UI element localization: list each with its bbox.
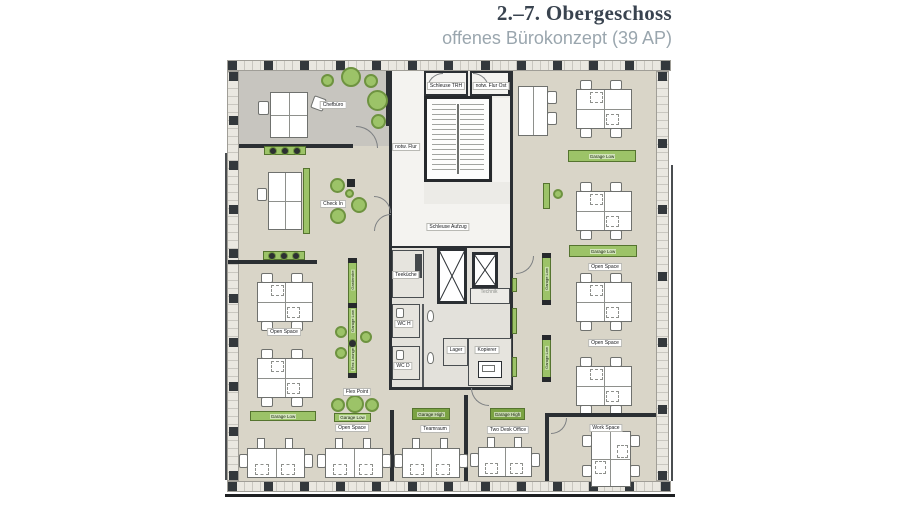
strip-cap — [348, 303, 357, 308]
label-garage-low: Garage Low — [590, 249, 617, 254]
room-label-check-in: Check In — [320, 200, 346, 208]
wall — [545, 413, 549, 481]
facade-column — [229, 116, 238, 125]
partition — [422, 304, 424, 387]
facade-column — [481, 61, 490, 70]
label-garage-low: Garage Low — [339, 415, 366, 420]
plant-icon — [330, 178, 345, 193]
facade-column — [517, 482, 526, 491]
facade-column — [589, 61, 598, 70]
wc-fixture — [396, 308, 404, 318]
wall — [464, 395, 468, 481]
green-panel — [512, 357, 517, 377]
desk-cluster — [570, 273, 638, 331]
facade-column — [553, 482, 562, 491]
plant-pot-icon — [280, 252, 288, 260]
plant-icon — [330, 208, 346, 224]
facade-column — [408, 61, 417, 70]
label-garage-high: Garage High — [494, 412, 522, 417]
stair-flight — [460, 104, 484, 174]
facade-top — [227, 60, 671, 71]
facade-column — [553, 61, 562, 70]
wc-fixture — [396, 350, 404, 360]
room-label-schleuse-trh: Schleuse TRH — [427, 82, 465, 90]
garage-high-bar: Garage High — [412, 408, 450, 420]
plant-icon — [364, 74, 378, 88]
plant-icon — [335, 326, 347, 338]
desk-cluster — [251, 349, 319, 407]
wc-sink — [427, 352, 434, 364]
wc-sink — [427, 310, 434, 322]
pillar — [347, 179, 355, 187]
plant-pot-icon — [268, 252, 276, 260]
desk-pair — [518, 86, 548, 136]
facade-column — [658, 205, 667, 214]
page-subtitle: offenes Bürokonzept (39 AP) — [442, 28, 672, 49]
desk-pair — [247, 438, 305, 484]
page-header: 2.–7. Obergeschoss offenes Bürokonzept (… — [442, 1, 672, 49]
facade-column — [372, 61, 381, 70]
zone-label-open-space: Open Space — [335, 424, 369, 432]
plant-icon — [331, 398, 345, 412]
core-strip — [493, 98, 510, 182]
plant-icon — [360, 331, 372, 343]
chef-desk — [270, 92, 308, 138]
room-label-chefbuero: Chefbüro — [320, 101, 347, 109]
plant-icon — [553, 189, 563, 199]
label-garage-low: Garage Low — [270, 414, 297, 419]
facade-column — [229, 294, 238, 303]
copier-icon — [478, 361, 502, 378]
label-flex-lounge: Flex Lounge — [351, 347, 355, 371]
facade-column — [300, 61, 309, 70]
desk-cluster — [570, 182, 638, 240]
facade-column — [481, 482, 490, 491]
desk-cluster — [570, 357, 638, 415]
facade-column — [658, 471, 667, 480]
room-label-work-space: Work Space — [589, 424, 622, 432]
room-label-schleuse-aufzug: Schleuse Aufzug — [426, 223, 469, 231]
facade-column — [658, 405, 667, 414]
strip-cap — [542, 335, 551, 340]
facade-right — [656, 71, 669, 481]
zone-label-open-space: Open Space — [267, 328, 301, 336]
facade-column — [661, 61, 670, 70]
plot-base-line — [225, 494, 675, 497]
facade-left — [227, 71, 239, 481]
green-panel — [512, 278, 517, 292]
strip-cap — [348, 258, 357, 263]
facade-column — [229, 249, 238, 258]
plant-icon — [341, 67, 361, 87]
floor-plan: Garderobe Garage Low Flex Lounge Garage … — [225, 58, 675, 498]
desk-cluster — [582, 425, 640, 493]
desk-cluster — [251, 273, 319, 331]
desk-pair — [402, 438, 460, 484]
strip-cap — [542, 377, 551, 382]
elevator-icon — [437, 248, 467, 304]
plant-icon — [365, 398, 379, 412]
room-label-notw-flur-ost: notw. Flur Ost — [473, 82, 510, 90]
desk-pair — [325, 438, 383, 484]
garage-low-bar: Garage Low — [568, 150, 636, 162]
label-garderobe: Garderobe — [351, 269, 355, 290]
facade-column — [228, 61, 237, 70]
room-label-wc-h: WC H — [394, 320, 413, 328]
label-garage-high: Garage High — [417, 412, 445, 417]
facade-column — [625, 61, 634, 70]
plant-icon — [335, 347, 347, 359]
chair — [547, 112, 557, 125]
plant-pot-icon — [292, 252, 300, 260]
page-title: 2.–7. Obergeschoss — [442, 1, 672, 26]
staircase — [424, 96, 492, 182]
room-label-teamraum: Teamraum — [420, 425, 450, 433]
room-label-teekueche: Teeküche — [392, 271, 419, 279]
green-panel — [512, 308, 517, 334]
facade-column — [229, 382, 238, 391]
chair — [257, 188, 267, 201]
elevator-icon — [472, 252, 498, 288]
plant-pot-icon — [281, 147, 289, 155]
strip-cap — [348, 373, 357, 378]
wall — [390, 410, 394, 481]
facade-column — [658, 139, 667, 148]
wall — [545, 413, 656, 417]
garage-low-bar: Garage Low — [334, 413, 371, 422]
label-garage-low: Garage Low — [351, 309, 355, 333]
strip-cap — [542, 300, 551, 305]
green-panel — [303, 168, 310, 234]
plant-icon — [351, 197, 367, 213]
plant-icon — [321, 74, 334, 87]
plant-icon — [367, 90, 388, 111]
chair — [547, 91, 557, 104]
check-in-desk — [268, 172, 302, 230]
room-label-technik: Technik — [479, 289, 500, 295]
facade-column — [661, 482, 670, 491]
facade-column — [658, 338, 667, 347]
zone-label-open-space: Open Space — [588, 339, 622, 347]
facade-column — [229, 427, 238, 436]
zone-label-open-space: Open Space — [588, 263, 622, 271]
facade-column — [229, 205, 238, 214]
room-label-notw-flur: notw. Flur — [392, 143, 420, 151]
label-garage-low: Garage Low — [545, 267, 549, 291]
facade-column — [228, 482, 237, 491]
facade-column — [658, 72, 667, 81]
garage-high-bar: Garage High — [490, 408, 525, 420]
plant-icon — [371, 114, 386, 129]
chair — [258, 101, 269, 115]
label-garage-low: Garage Low — [589, 154, 616, 159]
plant-pot-icon — [269, 147, 277, 155]
garage-low-bar: Garage Low — [250, 411, 316, 421]
corridor-west — [392, 71, 424, 204]
wall-stub — [228, 260, 317, 264]
desk-pair — [478, 437, 532, 483]
right-outer-line — [671, 165, 673, 481]
room-label-wc-d: WC D — [393, 362, 412, 370]
desk-cluster — [570, 80, 638, 138]
stair-divider — [457, 104, 459, 174]
label-garage-low: Garage Low — [545, 346, 549, 370]
strip-cap — [542, 253, 551, 258]
left-outer-line — [225, 153, 227, 480]
facade-column — [264, 61, 273, 70]
facade-column — [658, 272, 667, 281]
facade-column — [229, 471, 238, 480]
plant-pot-icon — [293, 147, 301, 155]
green-panel — [543, 183, 550, 209]
room-label-kopierer: Kopierer — [475, 346, 500, 354]
facade-column — [229, 338, 238, 347]
facade-column — [229, 161, 238, 170]
garage-low-bar: Garage Low — [569, 245, 637, 257]
facade-column — [229, 72, 238, 81]
zone-label-flex-point: Flex Point — [343, 388, 371, 396]
stair-flight — [432, 104, 456, 174]
plant-icon — [345, 189, 354, 198]
facade-column — [444, 61, 453, 70]
room-label-lager: Lager — [447, 346, 466, 354]
facade-column — [517, 61, 526, 70]
room-label-two-desk-office: Two Desk Office — [487, 426, 529, 434]
plant-icon — [346, 395, 364, 413]
